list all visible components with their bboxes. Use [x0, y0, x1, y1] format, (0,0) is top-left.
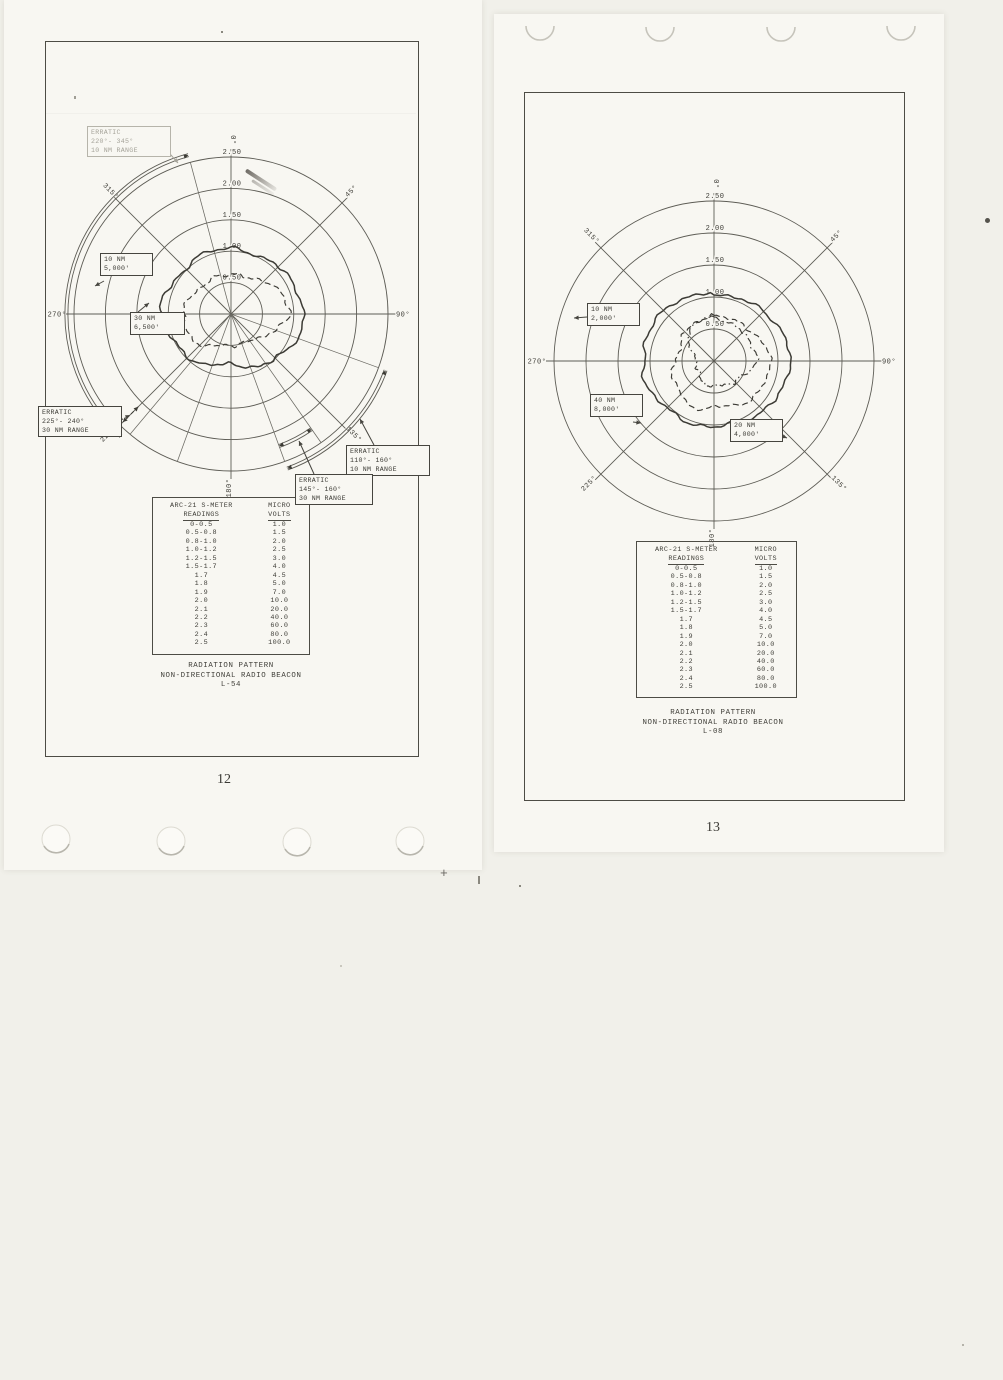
col2-header-line2: VOLTS	[268, 511, 290, 522]
dust-speck	[221, 31, 223, 33]
microvolts-cell: 7.0	[736, 633, 796, 641]
callout-line: 20 NM	[734, 422, 779, 431]
callout-line: 10 NM	[104, 256, 149, 265]
dust-speck	[340, 965, 342, 967]
microvolts-cell: 4.0	[250, 563, 309, 571]
reading-cell: 0.5-0.8	[153, 529, 250, 537]
callout-line: 30 NM	[134, 315, 181, 324]
caption-line: NON-DIRECTIONAL RADIO BEACON	[121, 672, 341, 682]
reading-cell: 2.2	[153, 614, 250, 622]
caption-line: RADIATION PATTERN	[603, 709, 823, 719]
reading-cell: 1.0-1.2	[637, 590, 736, 598]
caption-line: NON-DIRECTIONAL RADIO BEACON	[603, 719, 823, 729]
callout-box: 20 NM4,000'	[730, 419, 783, 442]
table-row: 2.5100.0	[153, 639, 309, 647]
microvolts-cell: 2.5	[736, 590, 796, 598]
table-row: 1.0-1.22.5	[153, 546, 309, 554]
callout-box: ERRATIC110°- 160°10 NM RANGE	[346, 445, 430, 476]
table-row: 2.480.0	[637, 675, 796, 683]
reading-cell: 2.2	[637, 658, 736, 666]
callout-box: ERRATIC145°- 160°30 NM RANGE	[295, 474, 373, 505]
table-row: 2.480.0	[153, 631, 309, 639]
table-row: 0-0.51.0	[153, 521, 309, 529]
microvolts-cell: 10.0	[250, 597, 309, 605]
table-row: 0.8-1.02.0	[637, 582, 796, 590]
microvolts-cell: 3.0	[250, 555, 309, 563]
table-row: 0.5-0.81.5	[637, 573, 796, 581]
callout-line: 40 NM	[594, 397, 639, 406]
reading-cell: 2.4	[153, 631, 250, 639]
microvolts-cell: 1.0	[736, 565, 796, 573]
callout-line: 4,000'	[734, 431, 779, 440]
microvolts-cell: 4.5	[736, 616, 796, 624]
callout-line: ERRATIC	[42, 409, 118, 418]
table-rows: 0-0.51.00.5-0.81.50.8-1.02.01.0-1.22.51.…	[637, 565, 796, 692]
table-header: ARC-21 S-METER MICRO	[637, 546, 796, 555]
table-row: 1.2-1.53.0	[153, 555, 309, 563]
microvolts-cell: 4.0	[736, 607, 796, 615]
table-row: 2.240.0	[153, 614, 309, 622]
microvolts-cell: 100.0	[250, 639, 309, 647]
table-row: 0.5-0.81.5	[153, 529, 309, 537]
callout-box: 30 NM6,500'	[130, 312, 185, 335]
reading-cell: 2.1	[153, 606, 250, 614]
table-row: 2.010.0	[153, 597, 309, 605]
reading-cell: 2.4	[637, 675, 736, 683]
microvolts-cell: 60.0	[250, 622, 309, 630]
table-header-underlined: READINGS VOLTS	[637, 555, 796, 566]
microvolts-cell: 60.0	[736, 666, 796, 674]
microvolts-cell: 2.5	[250, 546, 309, 554]
dust-speck	[74, 96, 76, 99]
figure-caption-left: RADIATION PATTERN NON-DIRECTIONAL RADIO …	[121, 662, 341, 691]
table-row: 0-0.51.0	[637, 565, 796, 573]
callout-box: ERRATIC225°- 240°30 NM RANGE	[38, 406, 122, 437]
callout-box: 10 NM2,000'	[587, 303, 640, 326]
col1-header-line2: READINGS	[183, 511, 219, 522]
callout-line: 5,000'	[104, 265, 149, 274]
callout-line: ERRATIC	[91, 129, 167, 138]
table-header: ARC-21 S-METER MICRO	[153, 502, 309, 511]
reading-cell: 1.2-1.5	[153, 555, 250, 563]
reading-cell: 2.5	[637, 683, 736, 691]
dust-speck	[962, 1344, 964, 1346]
table-row: 2.120.0	[153, 606, 309, 614]
caption-line: RADIATION PATTERN	[121, 662, 341, 672]
reading-cell: 0.5-0.8	[637, 573, 736, 581]
col2-header-line1: MICRO	[736, 546, 796, 555]
table-row: 1.74.5	[637, 616, 796, 624]
dust-speck	[985, 218, 990, 223]
smeter-table-right: ARC-21 S-METER MICRO READINGS VOLTS 0-0.…	[636, 541, 797, 698]
col1-header-line1: ARC-21 S-METER	[153, 502, 250, 511]
callout-line: 6,500'	[134, 324, 181, 333]
page-number-12: 12	[174, 772, 274, 788]
reading-cell: 2.0	[153, 597, 250, 605]
table-row: 1.74.5	[153, 572, 309, 580]
microvolts-cell: 80.0	[250, 631, 309, 639]
reading-cell: 2.1	[637, 650, 736, 658]
caption-line: L-54	[121, 681, 341, 691]
reading-cell: 0.8-1.0	[153, 538, 250, 546]
figure-caption-right: RADIATION PATTERN NON-DIRECTIONAL RADIO …	[603, 709, 823, 738]
caption-line: L-08	[603, 728, 823, 738]
reading-cell: 1.9	[153, 589, 250, 597]
reading-cell: 1.8	[153, 580, 250, 588]
callout-box: ERRATIC220°- 345°10 NM RANGE	[87, 126, 171, 157]
table-row: 1.5-1.74.0	[153, 563, 309, 571]
callout-box: 40 NM8,000'	[590, 394, 643, 417]
callout-line: 8,000'	[594, 406, 639, 415]
microvolts-cell: 1.5	[250, 529, 309, 537]
col1-header-line1: ARC-21 S-METER	[637, 546, 736, 555]
microvolts-cell: 2.0	[736, 582, 796, 590]
callout-line: 30 NM RANGE	[42, 427, 118, 436]
callout-line: ERRATIC	[299, 477, 369, 486]
page-number-13: 13	[663, 820, 763, 836]
microvolts-cell: 40.0	[736, 658, 796, 666]
reading-cell: 0.8-1.0	[637, 582, 736, 590]
table-row: 1.97.0	[153, 589, 309, 597]
reading-cell: 0-0.5	[637, 565, 736, 573]
reading-cell: 2.5	[153, 639, 250, 647]
smeter-table-left: ARC-21 S-METER MICRO READINGS VOLTS 0-0.…	[152, 497, 310, 655]
microvolts-cell: 10.0	[736, 641, 796, 649]
reading-cell: 1.5-1.7	[153, 563, 250, 571]
microvolts-cell: 7.0	[250, 589, 309, 597]
table-row: 0.8-1.02.0	[153, 538, 309, 546]
reading-cell: 1.7	[637, 616, 736, 624]
table-header-underlined: READINGS VOLTS	[153, 511, 309, 522]
reading-cell: 1.9	[637, 633, 736, 641]
dust-speck	[519, 885, 521, 887]
reading-cell: 1.7	[153, 572, 250, 580]
reading-cell: 2.0	[637, 641, 736, 649]
table-row: 1.2-1.53.0	[637, 599, 796, 607]
table-row: 1.5-1.74.0	[637, 607, 796, 615]
callout-line: 145°- 160°	[299, 486, 369, 495]
table-row: 2.5100.0	[637, 683, 796, 691]
microvolts-cell: 1.0	[250, 521, 309, 529]
table-row: 2.240.0	[637, 658, 796, 666]
registration-plus-mark: +	[440, 866, 448, 881]
table-row: 1.85.0	[637, 624, 796, 632]
table-row: 2.360.0	[637, 666, 796, 674]
table-row: 1.97.0	[637, 633, 796, 641]
col1-header-line2: READINGS	[668, 555, 704, 566]
callout-line: 110°- 160°	[350, 457, 426, 466]
microvolts-cell: 40.0	[250, 614, 309, 622]
reading-cell: 1.8	[637, 624, 736, 632]
callout-line: 225°- 240°	[42, 418, 118, 427]
microvolts-cell: 4.5	[250, 572, 309, 580]
microvolts-cell: 5.0	[736, 624, 796, 632]
callout-box: 10 NM5,000'	[100, 253, 153, 276]
microvolts-cell: 20.0	[250, 606, 309, 614]
table-rows: 0-0.51.00.5-0.81.50.8-1.02.01.0-1.22.51.…	[153, 521, 309, 648]
reading-cell: 1.0-1.2	[153, 546, 250, 554]
microvolts-cell: 80.0	[736, 675, 796, 683]
microvolts-cell: 20.0	[736, 650, 796, 658]
microvolts-cell: 2.0	[250, 538, 309, 546]
callout-line: 2,000'	[591, 315, 636, 324]
microvolts-cell: 100.0	[736, 683, 796, 691]
microvolts-cell: 3.0	[736, 599, 796, 607]
table-row: 1.85.0	[153, 580, 309, 588]
dust-speck	[478, 876, 480, 884]
microvolts-cell: 5.0	[250, 580, 309, 588]
microvolts-cell: 1.5	[736, 573, 796, 581]
callout-line: 10 NM	[591, 306, 636, 315]
table-row: 2.360.0	[153, 622, 309, 630]
table-row: 2.010.0	[637, 641, 796, 649]
reading-cell: 1.5-1.7	[637, 607, 736, 615]
reading-cell: 1.2-1.5	[637, 599, 736, 607]
callout-line: ERRATIC	[350, 448, 426, 457]
table-row: 2.120.0	[637, 650, 796, 658]
col2-header-line2: VOLTS	[755, 555, 777, 566]
reading-cell: 2.3	[637, 666, 736, 674]
reading-cell: 2.3	[153, 622, 250, 630]
reading-cell: 0-0.5	[153, 521, 250, 529]
callout-line: 30 NM RANGE	[299, 495, 369, 504]
table-row: 1.0-1.22.5	[637, 590, 796, 598]
callout-line: 10 NM RANGE	[91, 147, 167, 156]
callout-line: 220°- 345°	[91, 138, 167, 147]
